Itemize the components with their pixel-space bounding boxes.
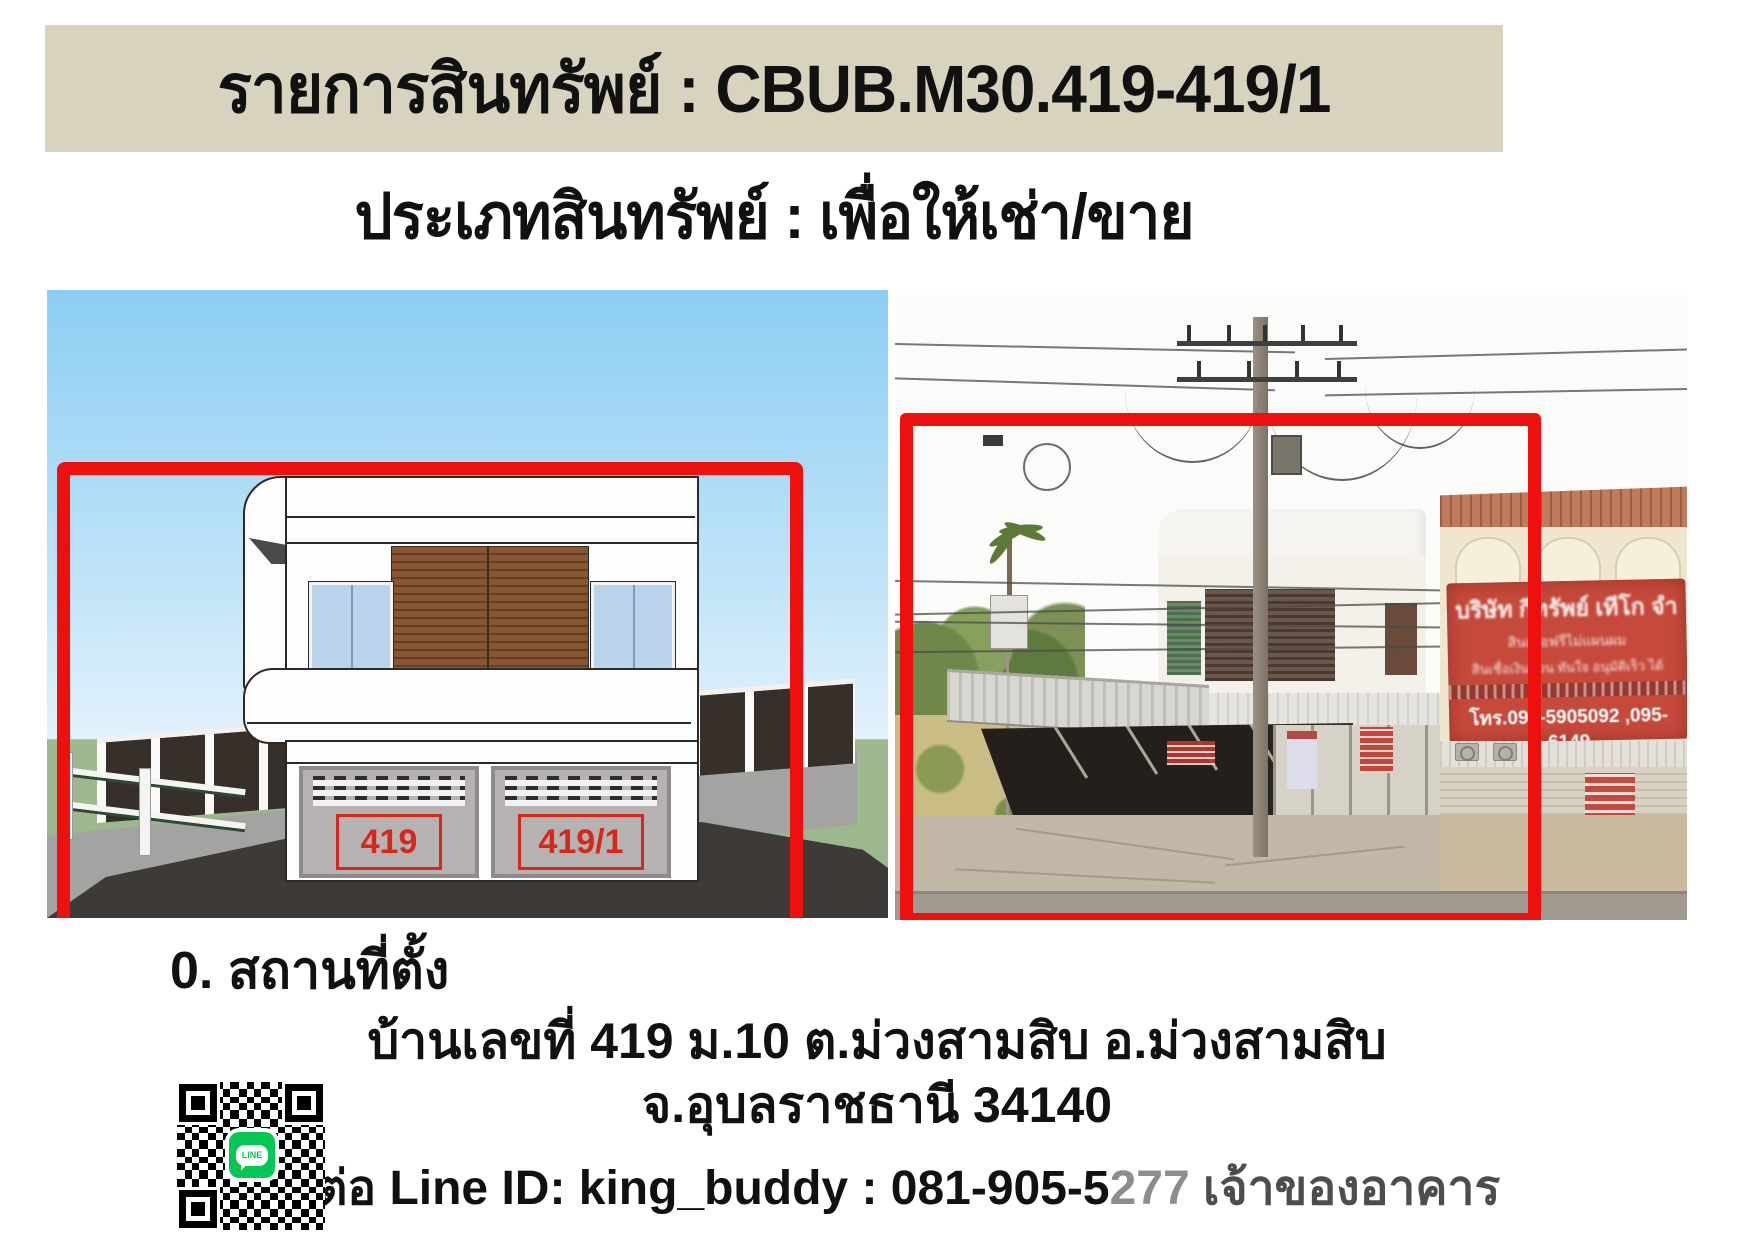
subtitle-row: ประเภทสินทรัพย์ : เพื่อให้เช่า/ขาย (45, 168, 1503, 264)
contact-phone-suffix: 277 (1110, 1162, 1190, 1215)
flyer-page: รายการสินทรัพย์ : CBUB.M30.419-419/1 ประ… (0, 0, 1754, 1240)
page-title: รายการสินทรัพย์ : CBUB.M30.419-419/1 (218, 35, 1331, 142)
asset-type-subtitle: ประเภทสินทรัพย์ : เพื่อให้เช่า/ขาย (355, 166, 1194, 266)
highlight-frame (57, 462, 803, 918)
qr-finder (285, 1084, 323, 1122)
qr-finder (179, 1190, 217, 1228)
pole-crossarm (1177, 377, 1357, 382)
location-heading: 0. สถานที่ตั้ง (170, 928, 449, 1011)
render-image: 419 419/1 (47, 290, 888, 918)
pole-crossarm (1177, 341, 1357, 346)
qr-finder (179, 1084, 217, 1122)
line-logo-label: LINE (236, 1145, 268, 1166)
contact-line-id: ติดต่อ Line ID: king_buddy : 081-905-5 (254, 1162, 1110, 1215)
highlight-frame (900, 413, 1541, 920)
street-photo: บริษัท กีทรัพย์ เทีโก จำ สินเชื่อฟรีไม่แ… (895, 295, 1687, 920)
title-banner: รายการสินทรัพย์ : CBUB.M30.419-419/1 (45, 25, 1503, 152)
line-logo-icon: LINE (229, 1132, 275, 1178)
power-line (1325, 348, 1687, 360)
contact-owner-note: เจ้าของอาคาร (1190, 1162, 1501, 1215)
line-qr-code: LINE (177, 1082, 325, 1230)
